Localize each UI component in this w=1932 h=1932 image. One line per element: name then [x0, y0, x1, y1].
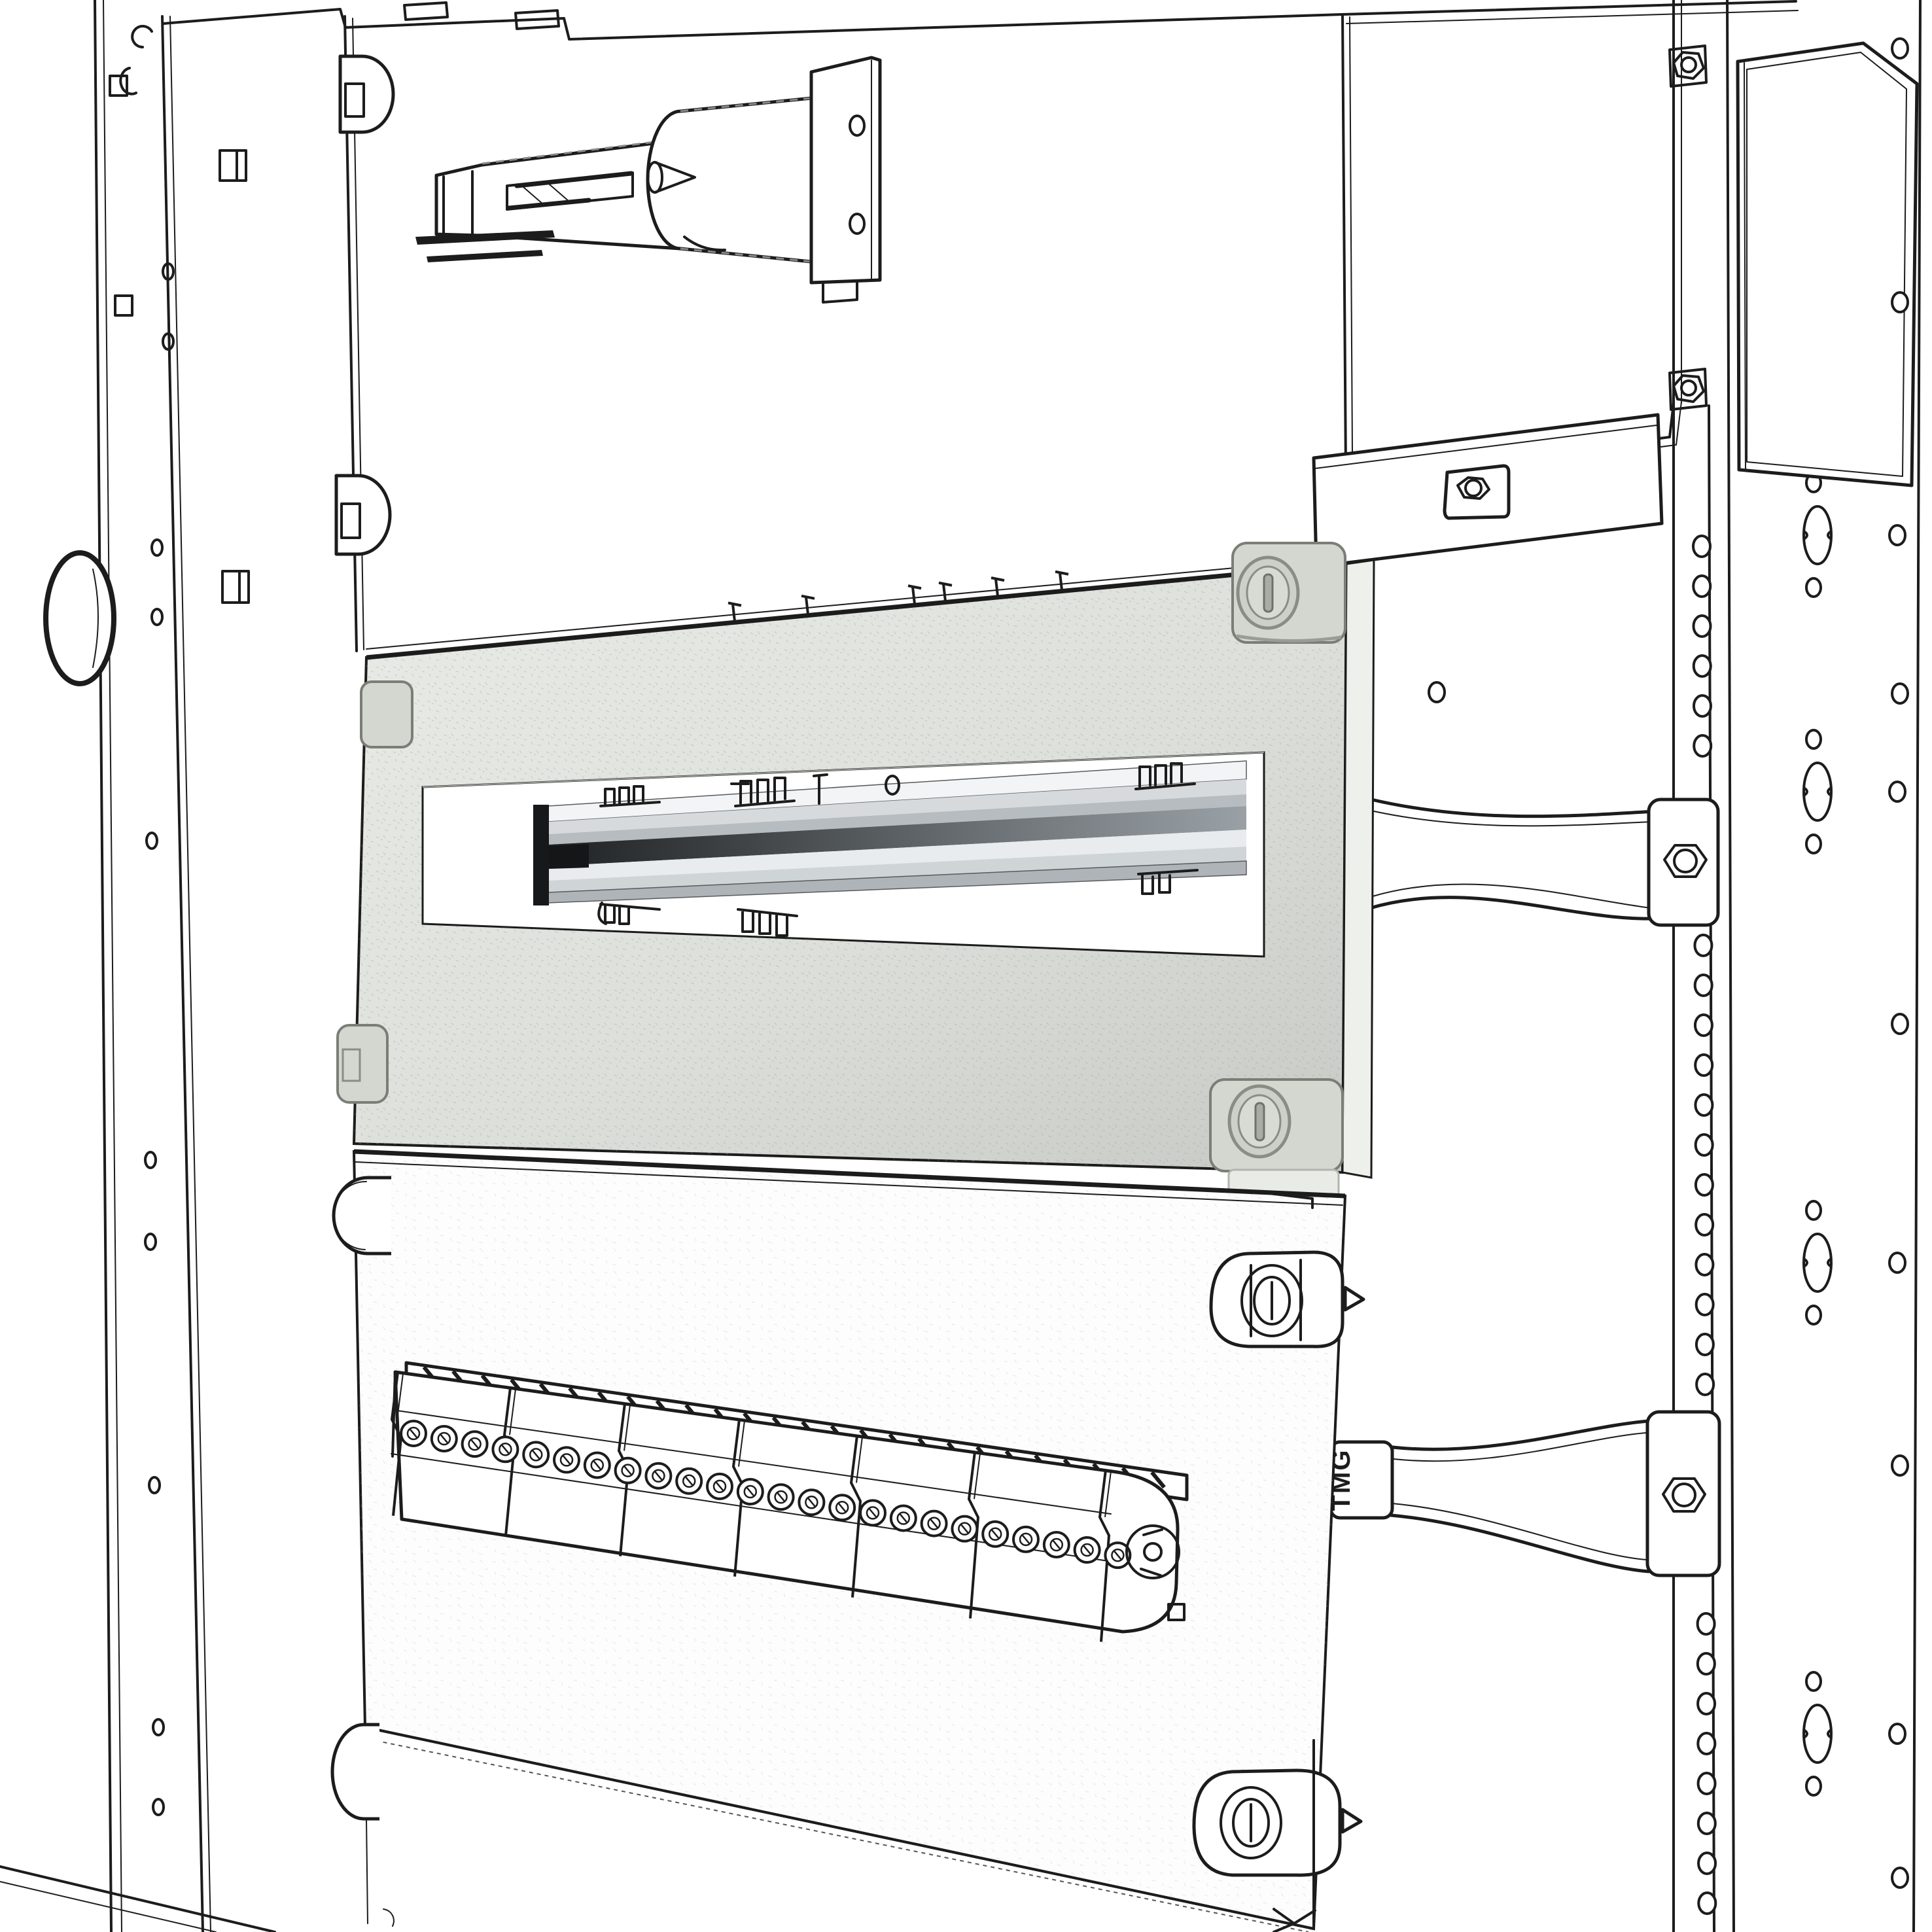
lock-slot	[1264, 574, 1273, 612]
flange-hole	[1889, 1724, 1905, 1744]
busbar-cover-box	[1738, 43, 1917, 485]
flange-hole	[1892, 1014, 1908, 1034]
bracket-strap	[1370, 799, 1655, 919]
quarter-turn-lock-outline-top[interactable]	[1211, 1252, 1363, 1346]
panel-clip-outline	[333, 1178, 391, 1254]
rail-hole	[1698, 1773, 1715, 1794]
rail-hole	[1695, 1095, 1712, 1115]
rail-hole	[1696, 1294, 1713, 1315]
lock-slot	[1256, 1103, 1264, 1140]
rail-hole	[1693, 576, 1710, 597]
coupler-plate	[811, 58, 880, 283]
flange-hole	[1892, 1868, 1908, 1888]
rail-hole	[1696, 1374, 1713, 1395]
quarter-turn-lock-top[interactable]	[1233, 543, 1345, 642]
rail-hole	[1698, 1853, 1715, 1874]
panel-clip	[338, 1025, 387, 1102]
rail-hole	[1698, 1733, 1715, 1754]
rail-hole	[1696, 1254, 1713, 1275]
rail-hole	[1698, 1653, 1715, 1674]
rail-hole	[1696, 1214, 1713, 1235]
quarter-turn-lock-outline-bottom[interactable]	[1194, 1770, 1361, 1875]
rail-hole	[1696, 1134, 1713, 1155]
bracket-plate	[1647, 1412, 1719, 1575]
left-knob	[46, 553, 114, 684]
din-rail-end-cap	[533, 805, 549, 905]
shelf-bracket	[1445, 466, 1509, 518]
rail-hole	[1698, 1813, 1715, 1834]
rail-hole	[1698, 1693, 1715, 1714]
rail-hole	[1698, 1613, 1715, 1634]
flange-hole	[1889, 525, 1905, 545]
rail-hole	[1696, 1174, 1713, 1195]
flange-hole	[1889, 1253, 1905, 1273]
flange-hole	[1892, 1456, 1908, 1475]
flange-hole	[1892, 292, 1908, 312]
rail-hole	[1694, 735, 1711, 756]
rail-hole	[1696, 1334, 1713, 1355]
rail-hole	[1694, 695, 1711, 716]
enclosure-assembly-illustration: TMG TMG	[0, 0, 1932, 1932]
panel-clip	[361, 682, 412, 747]
panel-side-edge	[1343, 560, 1374, 1178]
bracket-plate	[1649, 799, 1718, 925]
flange-hole	[1892, 684, 1908, 703]
flange-hole	[1892, 39, 1908, 58]
flange-hole	[1889, 782, 1905, 801]
rail-hole	[1698, 1893, 1715, 1914]
rail-hole	[1695, 975, 1712, 996]
rail-hole	[1695, 935, 1712, 956]
rail-hole	[1693, 616, 1710, 637]
rail-hole	[1695, 1015, 1712, 1036]
rail-hole	[1694, 656, 1711, 676]
rail-hole	[1693, 536, 1710, 557]
rail-hole	[1695, 1055, 1712, 1076]
